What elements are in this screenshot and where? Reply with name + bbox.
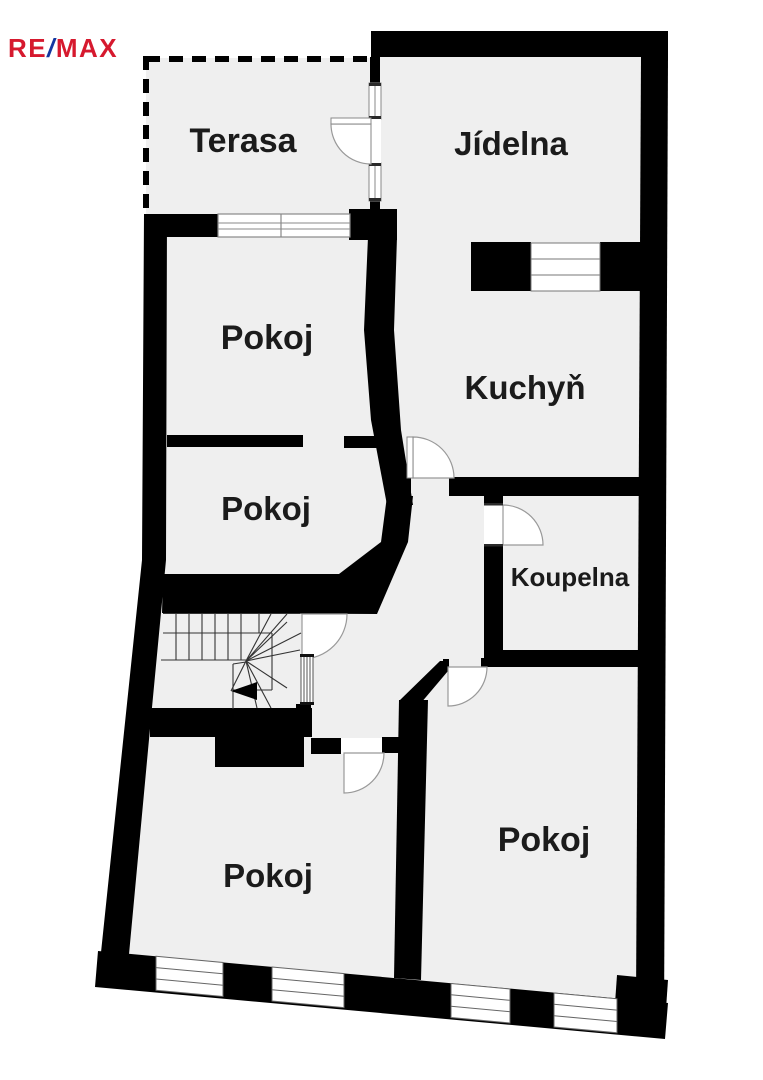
svg-text:Terasa: Terasa (189, 122, 297, 160)
svg-text:Pokoj: Pokoj (498, 821, 591, 859)
svg-text:Jídelna: Jídelna (454, 125, 568, 162)
svg-text:Kuchyň: Kuchyň (464, 369, 585, 406)
svg-text:Pokoj: Pokoj (223, 857, 313, 894)
svg-text:Pokoj: Pokoj (221, 319, 314, 357)
svg-text:Koupelna: Koupelna (511, 562, 630, 592)
svg-text:Pokoj: Pokoj (221, 490, 311, 527)
